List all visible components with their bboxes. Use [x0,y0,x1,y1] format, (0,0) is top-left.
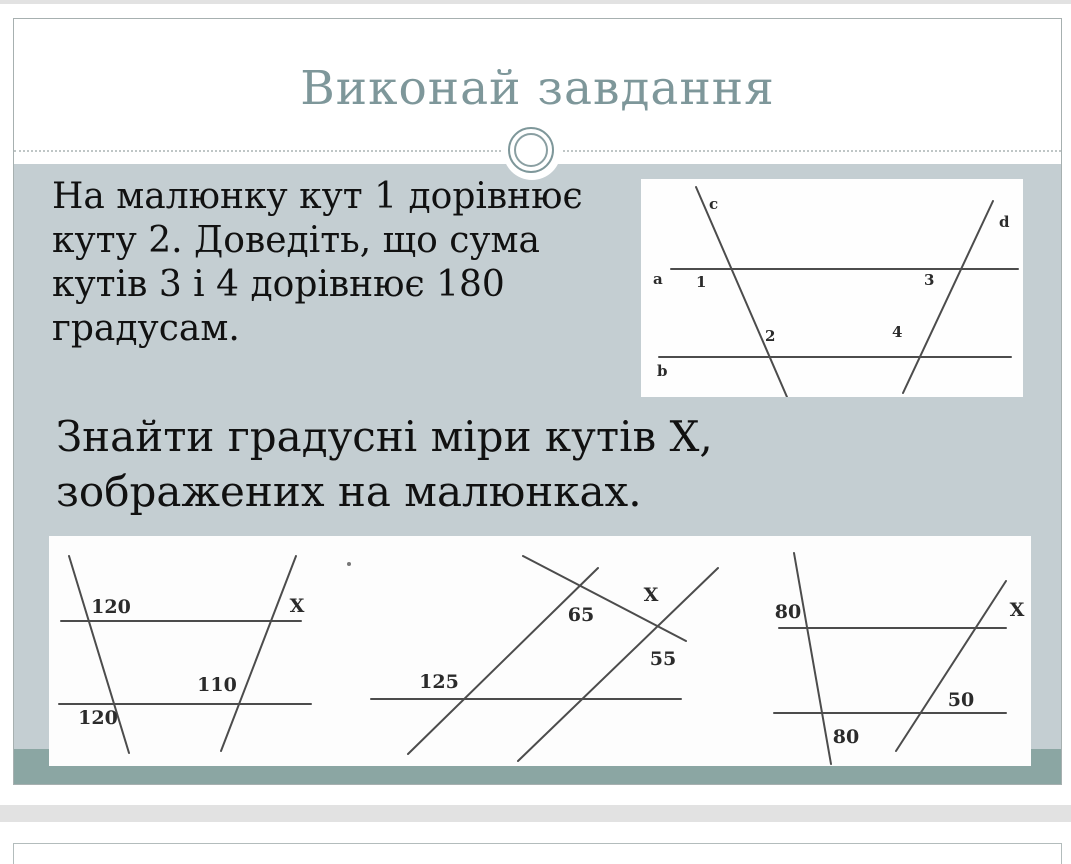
label-line-d: d [999,213,1010,231]
stray-dot [347,562,351,566]
label-line-a: a [653,270,663,288]
angle-figures-svg: 120 X 110 120 125 65 X 55 80 X 50 80 [49,536,1031,766]
fig3-angle-bottom: 80 [833,726,859,748]
fig2-parallel-right [518,568,718,761]
page-top-strip [0,0,1071,4]
fig2-x-label: X [644,584,659,606]
task2-line1: Знайти градусні міри кутів X, [56,409,713,464]
fig3-transversal-left [794,553,831,764]
task2-paragraph: Знайти градусні міри кутів X, зображених… [56,409,713,519]
task1-line2: куту 2. Доведіть, що сума [52,219,583,263]
fig2-angle-upper: 65 [568,604,594,626]
proof-diagram-figure: c d a 1 3 2 4 b [641,179,1023,397]
fig2-transversal [523,556,686,641]
fig2-parallel-left [408,568,598,754]
between-slides-strip [0,805,1071,822]
transversal-line-c [696,187,787,397]
fig3-angle-top-left: 80 [775,601,801,623]
label-line-c: c [709,195,718,213]
task2-line2: зображених на малюнках. [56,464,713,519]
next-slide-edge [13,843,1062,864]
fig2-angle-lower: 55 [650,648,676,670]
fig1-angle-mid: 110 [197,674,237,696]
divider-ornament-inner-circle-icon [514,133,548,167]
task1-line4: градусам. [52,307,583,351]
fig1-angle-bottom: 120 [78,707,118,729]
fig3-x-label: X [1010,599,1025,621]
fig3-transversal-right [896,581,1006,751]
fig2-angle-left: 125 [419,671,459,693]
label-angle-4: 4 [892,323,902,341]
fig1-angle-top: 120 [91,596,131,618]
task1-line3: кутів 3 і 4 дорівнює 180 [52,263,583,307]
transversal-line-d [903,201,993,393]
fig1-transversal-right [221,556,296,751]
fig1-x-label: X [290,595,305,617]
task1-paragraph: На малюнку кут 1 дорівнює куту 2. Доведі… [52,175,583,351]
label-angle-1: 1 [696,273,706,291]
task1-line1: На малюнку кут 1 дорівнює [52,175,583,219]
slide-title: Виконай завдання [14,63,1061,115]
proof-diagram-svg: c d a 1 3 2 4 b [641,179,1023,397]
presentation-slide: Виконай завдання На малюнку кут 1 дорівн… [13,18,1062,785]
label-line-b: b [657,362,668,380]
label-angle-2: 2 [765,327,775,345]
angle-figures-band: 120 X 110 120 125 65 X 55 80 X 50 80 [49,536,1031,766]
fig3-angle-right: 50 [948,689,974,711]
label-angle-3: 3 [924,271,934,289]
